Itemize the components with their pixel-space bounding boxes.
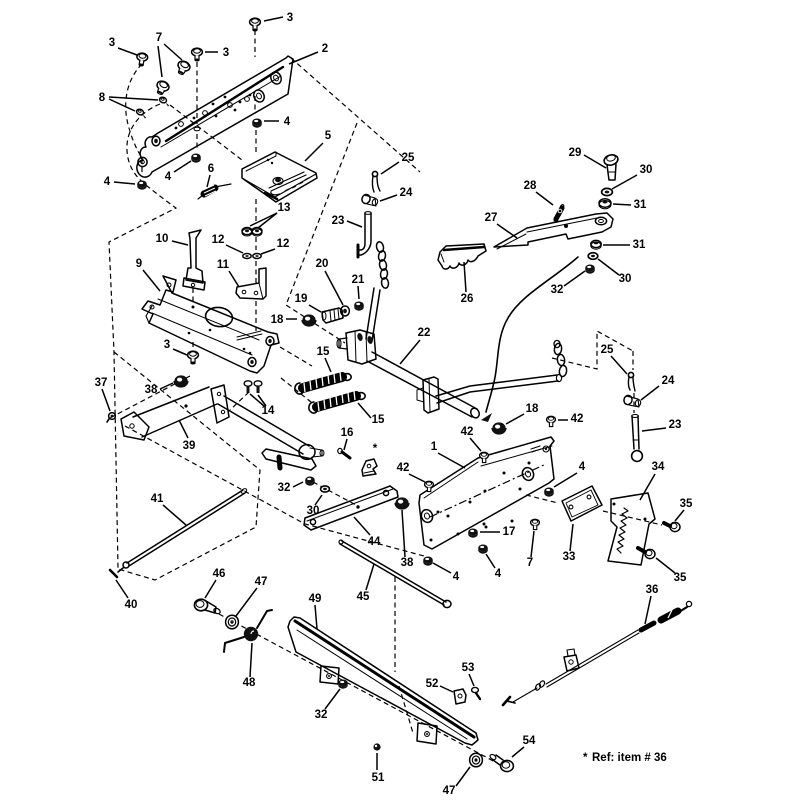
svg-text:35: 35 [674, 572, 687, 584]
svg-text:10: 10 [156, 233, 169, 245]
svg-text:33: 33 [563, 551, 576, 563]
svg-text:3: 3 [287, 12, 293, 24]
svg-text:2: 2 [322, 43, 328, 55]
svg-text:24: 24 [662, 375, 675, 387]
svg-text:47: 47 [443, 785, 456, 797]
svg-text:17: 17 [503, 526, 516, 538]
svg-text:49: 49 [309, 593, 322, 605]
svg-text:35: 35 [680, 498, 693, 510]
svg-text:24: 24 [400, 187, 413, 199]
svg-text:3: 3 [109, 37, 115, 49]
svg-text:8: 8 [99, 92, 106, 104]
svg-text:52: 52 [426, 678, 439, 690]
svg-text:4: 4 [284, 116, 291, 128]
svg-text:54: 54 [523, 735, 536, 747]
svg-text:41: 41 [151, 493, 164, 505]
svg-text:4: 4 [495, 568, 502, 580]
svg-text:15: 15 [372, 414, 385, 426]
svg-text:7: 7 [156, 32, 162, 44]
svg-text:18: 18 [271, 314, 284, 326]
svg-text:5: 5 [325, 130, 332, 142]
svg-text:48: 48 [243, 677, 256, 689]
svg-text:51: 51 [372, 772, 385, 784]
svg-text:34: 34 [652, 461, 665, 473]
svg-text:44: 44 [368, 536, 381, 548]
svg-text:25: 25 [601, 344, 614, 356]
svg-text:28: 28 [524, 180, 537, 192]
svg-text:27: 27 [485, 212, 498, 224]
svg-text:32: 32 [551, 284, 564, 296]
svg-text:23: 23 [332, 215, 345, 227]
svg-text:31: 31 [633, 239, 646, 251]
svg-text:11: 11 [217, 259, 230, 271]
svg-text:30: 30 [619, 273, 632, 285]
svg-text:18: 18 [526, 403, 539, 415]
svg-text:1: 1 [431, 441, 438, 453]
svg-text:*: * [583, 752, 588, 764]
svg-text:4: 4 [104, 176, 111, 188]
svg-text:42: 42 [397, 462, 410, 474]
svg-text:6: 6 [208, 163, 214, 175]
svg-text:9: 9 [136, 258, 142, 270]
svg-text:38: 38 [401, 557, 414, 569]
svg-text:12: 12 [212, 234, 225, 246]
svg-text:38: 38 [145, 384, 158, 396]
svg-text:36: 36 [646, 584, 659, 596]
svg-text:42: 42 [571, 413, 584, 425]
svg-text:22: 22 [418, 327, 431, 339]
svg-text:37: 37 [95, 377, 108, 389]
svg-text:7: 7 [527, 557, 533, 569]
svg-text:3: 3 [164, 339, 170, 351]
svg-text:29: 29 [569, 147, 582, 159]
svg-text:14: 14 [262, 405, 275, 417]
svg-text:23: 23 [669, 419, 682, 431]
svg-text:Ref: item # 36: Ref: item # 36 [592, 752, 667, 764]
svg-text:46: 46 [213, 568, 226, 580]
svg-text:53: 53 [462, 662, 475, 674]
svg-text:30: 30 [640, 164, 653, 176]
svg-text:26: 26 [461, 293, 474, 305]
svg-text:32: 32 [278, 482, 291, 494]
svg-text:47: 47 [255, 576, 268, 588]
svg-text:32: 32 [315, 709, 328, 721]
svg-text:13: 13 [278, 202, 291, 214]
svg-text:31: 31 [634, 199, 647, 211]
svg-text:15: 15 [317, 346, 330, 358]
svg-text:21: 21 [352, 274, 365, 286]
svg-text:12: 12 [277, 238, 290, 250]
svg-text:*: * [373, 443, 378, 455]
svg-text:4: 4 [165, 171, 172, 183]
svg-text:4: 4 [579, 461, 586, 473]
svg-text:42: 42 [461, 426, 474, 438]
svg-text:3: 3 [223, 47, 229, 59]
svg-text:16: 16 [341, 427, 354, 439]
svg-text:40: 40 [125, 599, 138, 611]
svg-text:20: 20 [316, 258, 329, 270]
svg-text:19: 19 [295, 293, 308, 305]
svg-text:39: 39 [183, 440, 196, 452]
svg-text:4: 4 [453, 571, 460, 583]
svg-text:25: 25 [402, 152, 415, 164]
svg-text:45: 45 [357, 591, 370, 603]
